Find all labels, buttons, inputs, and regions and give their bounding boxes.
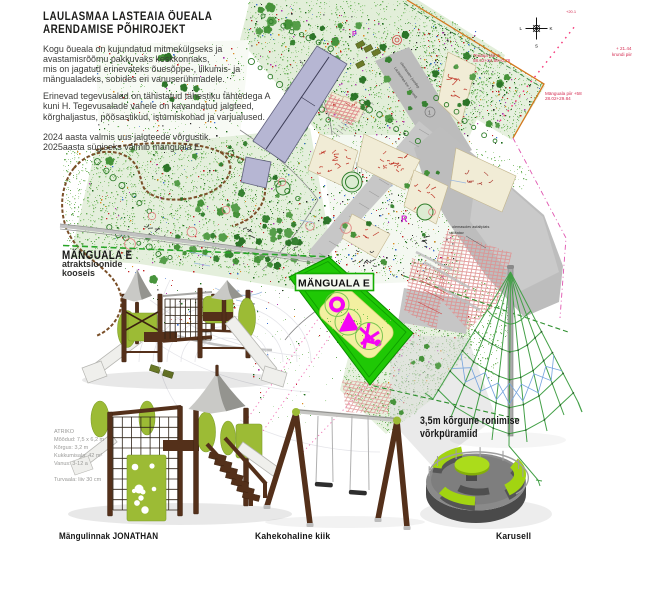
svg-text:S: S xyxy=(535,44,538,49)
svg-text:Kukkumisala: 42 m²: Kukkumisala: 42 m² xyxy=(54,453,102,459)
svg-text:Mõõdud: 7,5 x 6,2 m: Mõõdud: 7,5 x 6,2 m xyxy=(54,437,105,443)
svg-text:Kõrgus: 3,2 m: Kõrgus: 3,2 m xyxy=(54,445,89,451)
svg-text:+20.1: +20.1 xyxy=(566,9,577,14)
svg-text:K: K xyxy=(550,26,553,31)
svg-text:säilitatav: säilitatav xyxy=(449,231,464,235)
svg-text:+ 21.44: + 21.44 xyxy=(616,46,632,51)
svg-text:Turvaala: liiv 30 cm: Turvaala: liiv 30 cm xyxy=(54,477,102,483)
svg-text:L: L xyxy=(520,26,523,31)
svg-text:MÄNGUALA E: MÄNGUALA E xyxy=(298,277,370,290)
svg-text:Vanus: 3-12 a: Vanus: 3-12 a xyxy=(54,461,89,467)
svg-text:krundi piir: krundi piir xyxy=(612,52,632,57)
svg-text:58.02+24.59+0.76: 58.02+24.59+0.76 xyxy=(473,58,511,63)
svg-text:R: R xyxy=(401,214,408,224)
svg-text:ATRIKO: ATRIKO xyxy=(54,429,75,435)
svg-text:1: 1 xyxy=(428,111,431,117)
svg-text:28.02+29.84: 28.02+29.84 xyxy=(545,96,571,101)
svg-text:olemasolev asfaltplats: olemasolev asfaltplats xyxy=(452,225,489,229)
svg-text:P: P xyxy=(352,31,357,38)
